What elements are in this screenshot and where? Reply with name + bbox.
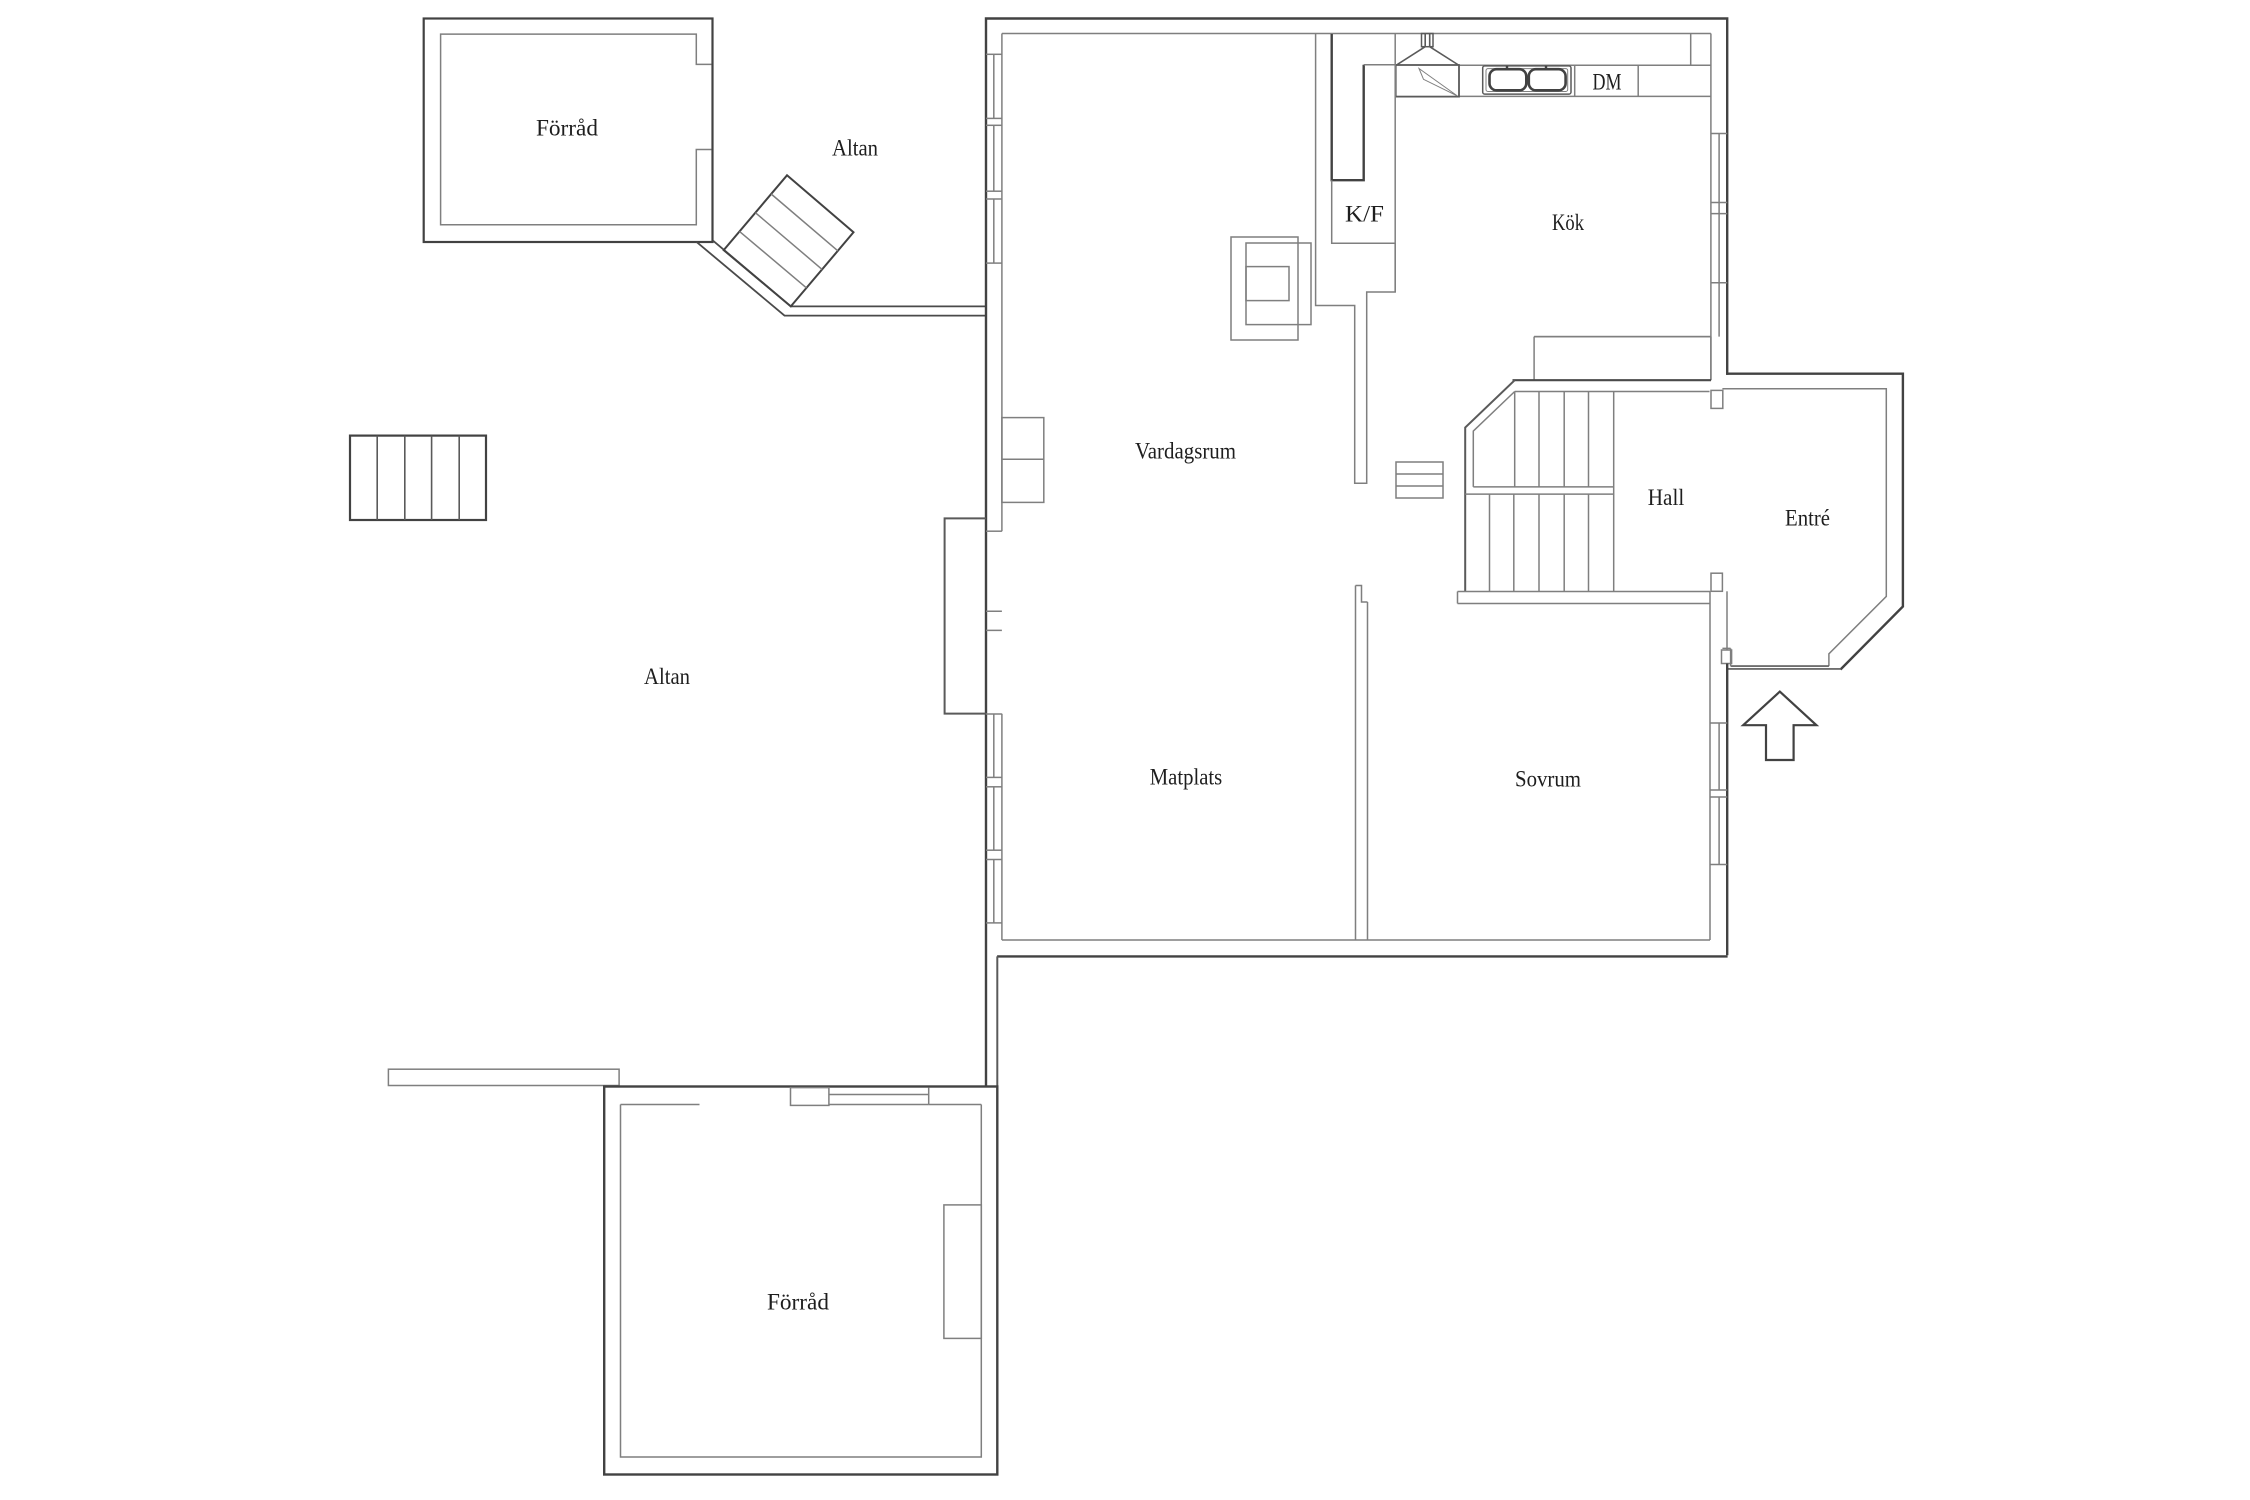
svg-text:Kök: Kök <box>1552 210 1584 236</box>
svg-text:Matplats: Matplats <box>1150 765 1223 791</box>
svg-text:Vardagsrum: Vardagsrum <box>1135 439 1236 465</box>
svg-text:Entré: Entré <box>1785 506 1830 532</box>
svg-text:Förråd: Förråd <box>536 116 598 142</box>
svg-text:DM: DM <box>1593 70 1622 96</box>
svg-text:K/F: K/F <box>1345 202 1384 228</box>
svg-text:Hall: Hall <box>1648 485 1685 511</box>
svg-text:Altan: Altan <box>644 664 690 690</box>
svg-text:Förråd: Förråd <box>767 1290 829 1316</box>
svg-text:Sovrum: Sovrum <box>1515 767 1581 793</box>
svg-text:Altan: Altan <box>832 136 878 162</box>
